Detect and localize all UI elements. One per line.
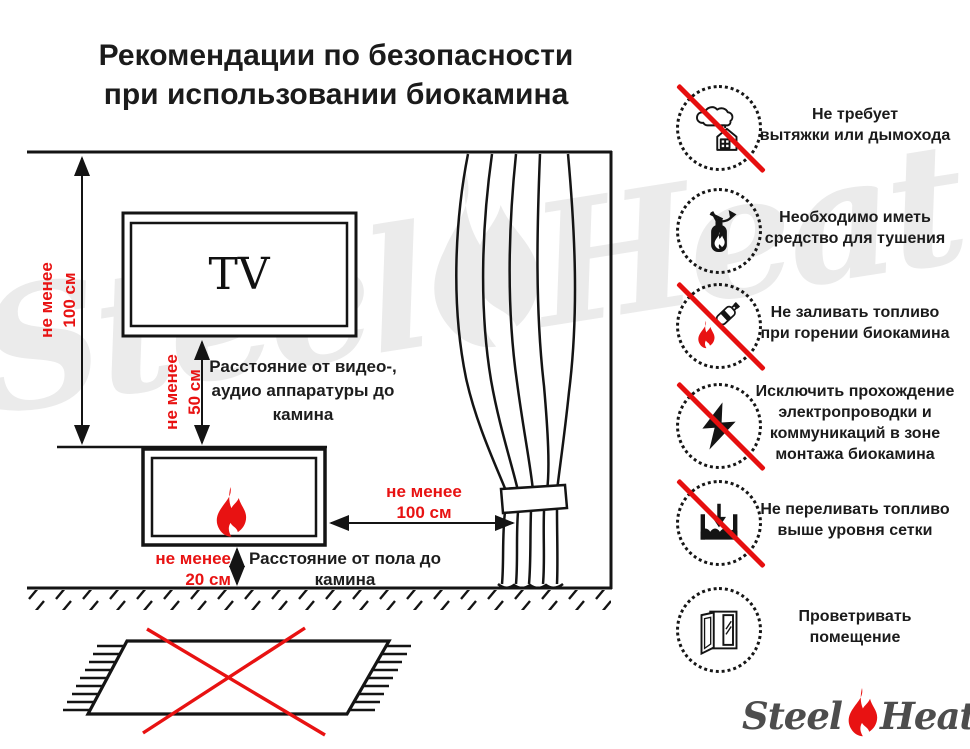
label-floor-line2: камина (315, 570, 376, 589)
dim-wall-tv-label2: 100 см (60, 272, 79, 327)
rule-text: помещение (740, 627, 970, 648)
fireplace (143, 449, 325, 545)
rule-text: Необходимо иметь (740, 207, 970, 228)
rule-text: Исключить прохождение (740, 381, 970, 402)
dim-fireplace-floor-label2: 20 см (185, 570, 231, 589)
rule-text: коммуникаций в зоне (740, 423, 970, 444)
dim-fireplace-floor-label1: не менее (155, 549, 231, 568)
dim-tv-fireplace: не менее 50 см (162, 342, 204, 443)
rule-text: монтажа биокамина (740, 444, 970, 465)
dim-fireplace-curtain-label1: не менее (386, 482, 462, 501)
label-floor-distance: Расстояние от пола до камина (249, 549, 441, 589)
label-av-line1: Расстояние от видео-, (209, 357, 396, 376)
rule-text: Не переливать топливо (740, 499, 970, 520)
curtain-tie-band (501, 485, 567, 513)
rule-text: вытяжки или дымохода (740, 125, 970, 146)
tv-label: TV (208, 249, 270, 300)
dim-fireplace-floor: не менее 20 см (155, 549, 237, 589)
dim-wall-tv: не менее 100 см (37, 158, 82, 443)
logo-flame-icon (845, 688, 879, 738)
tv: TV (123, 213, 356, 336)
biofireplace-safety-infographic: Steel Heat Рекомендации по безопасности … (0, 0, 970, 749)
dim-fireplace-curtain: не менее 100 см (331, 482, 513, 523)
dim-fireplace-curtain-label2: 100 см (396, 503, 451, 522)
label-av-line3: камина (273, 405, 334, 424)
rule-text: Не заливать топливо (740, 302, 970, 323)
rule-text: средство для тушения (740, 228, 970, 249)
label-av-distance: Расстояние от видео-, аудио аппаратуры д… (209, 357, 396, 424)
rule-text: Не требует (740, 104, 970, 125)
logo-steel-text: Steel (742, 694, 842, 738)
label-av-line2: аудио аппаратуры до (212, 381, 395, 400)
logo-heat-text: Heat (880, 694, 970, 738)
rule-text: Проветривать (740, 606, 970, 627)
page-title: Рекомендации по безопасности при использ… (0, 36, 672, 114)
rule-text: при горении биокамина (740, 323, 970, 344)
rule-text: электропроводки и (740, 402, 970, 423)
rule-text: выше уровня сетки (740, 520, 970, 541)
floor-hatching (27, 590, 611, 610)
page-title-line1: Рекомендации по безопасности (0, 36, 672, 75)
label-floor-line1: Расстояние от пола до (249, 549, 441, 568)
dim-wall-tv-label1: не менее (37, 262, 56, 338)
dim-tv-fireplace-label2: 50 см (185, 369, 204, 415)
steelheat-logo: Steel Heat (742, 688, 970, 744)
dim-tv-fireplace-label1: не менее (162, 354, 181, 430)
page-title-line2: при использовании биокамина (0, 75, 672, 114)
carpet (63, 628, 411, 735)
